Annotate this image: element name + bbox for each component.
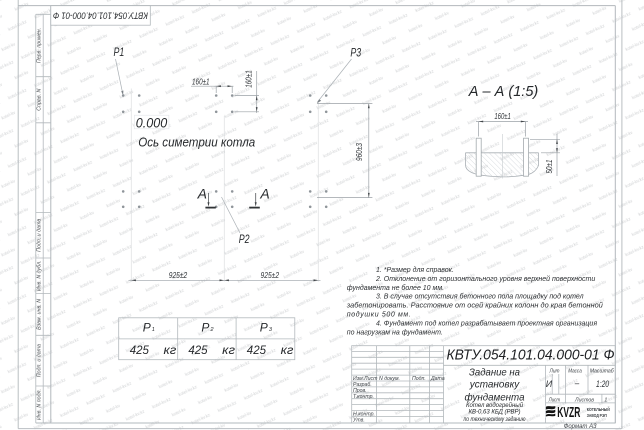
svg-text:Лит: Лит [549, 369, 560, 375]
svg-text:Масштаб: Масштаб [590, 369, 615, 375]
svg-text:Справ. N: Справ. N [37, 88, 43, 110]
svg-text:50±1: 50±1 [545, 160, 554, 174]
svg-text:ЗАВОД РЭП: ЗАВОД РЭП [587, 413, 607, 418]
svg-text:Ось симетрии котла: Ось симетрии котла [138, 135, 255, 149]
svg-text:Листов: Листов [574, 398, 594, 404]
svg-text:160±1: 160±1 [494, 112, 511, 121]
svg-text:Лист: Лист [548, 398, 561, 404]
svg-text:P3: P3 [350, 47, 361, 59]
svg-text:P2: P2 [239, 234, 250, 246]
svg-text:по нагрузкам на фундамент.: по нагрузкам на фундамент. [347, 328, 443, 336]
svg-text:Инв. N подл.: Инв. N подл. [37, 389, 43, 420]
svg-text:Подп. и дата: Подп. и дата [37, 219, 43, 252]
svg-text:установку: установку [469, 378, 520, 390]
svg-text:А: А [259, 186, 269, 202]
svg-text:425: 425 [130, 343, 150, 357]
svg-text:подушки 500 мм.: подушки 500 мм. [347, 311, 411, 319]
svg-text:1. *Размер для справок.: 1. *Размер для справок. [376, 266, 454, 274]
svg-text:1: 1 [604, 398, 607, 404]
svg-text:–: – [574, 379, 580, 388]
svg-text:KVZR: KVZR [557, 405, 580, 421]
svg-text:Утв.: Утв. [353, 417, 365, 423]
svg-text:P: P [143, 321, 151, 335]
svg-text:925±2: 925±2 [261, 271, 280, 280]
svg-text:Взам. инв. N: Взам. инв. N [37, 299, 43, 330]
svg-text:Дата: Дата [430, 376, 445, 382]
svg-text:960±3: 960±3 [355, 142, 364, 161]
svg-text:425: 425 [188, 343, 208, 357]
svg-text:160±1: 160±1 [192, 77, 210, 86]
svg-text:Котел водогрейный: Котел водогрейный [466, 402, 524, 409]
svg-text:2. Отклонение от горизонтально: 2. Отклонение от горизонтального уровня … [375, 275, 595, 283]
svg-text:КВ-0,63 КБД (РВР): КВ-0,63 КБД (РВР) [468, 410, 520, 416]
svg-text:925±2: 925±2 [169, 271, 188, 280]
svg-text:0.000: 0.000 [136, 116, 168, 131]
svg-text:Т.контр.: Т.контр. [353, 394, 374, 400]
svg-text:КВТУ.054.101.04.000-01 Ф: КВТУ.054.101.04.000-01 Ф [447, 347, 615, 364]
svg-text:Перв. примен.: Перв. примен. [37, 28, 43, 63]
svg-text:160±1: 160±1 [245, 70, 254, 88]
svg-text:кг: кг [164, 343, 177, 357]
svg-text:1: 1 [152, 327, 155, 333]
svg-text:по техническому заданию: по техническому заданию [464, 417, 526, 423]
svg-text:Подп.: Подп. [412, 376, 426, 382]
svg-text:фундамента не более 10 мм.: фундамента не более 10 мм. [347, 284, 444, 292]
svg-text:2: 2 [210, 327, 214, 333]
svg-text:P1: P1 [114, 47, 125, 59]
svg-text:А – А (1:5): А – А (1:5) [468, 83, 538, 100]
svg-text:забетонировать. Расстояние от: забетонировать. Расстояние от осей крайн… [346, 302, 603, 310]
svg-text:425: 425 [247, 343, 267, 357]
svg-text:3. В случае отсутствия бетонно: 3. В случае отсутствия бетонного пола пл… [376, 293, 584, 301]
svg-text:Задание на: Задание на [469, 367, 520, 379]
svg-text:P: P [201, 321, 209, 335]
svg-text:Инв. N дубл.: Инв. N дубл. [37, 260, 43, 291]
svg-text:А: А [197, 186, 207, 202]
svg-text:фундамента: фундамента [465, 392, 525, 404]
svg-text:Масса: Масса [568, 369, 582, 375]
svg-text:P: P [260, 321, 268, 335]
svg-text:N докум.: N докум. [379, 376, 400, 382]
svg-text:КВТУ.054.101.04.000-01 Ф: КВТУ.054.101.04.000-01 Ф [53, 10, 148, 20]
svg-text:И: И [546, 379, 553, 389]
svg-text:4. Фундамент под котел разраба: 4. Фундамент под котел разрабатывает про… [376, 319, 597, 327]
svg-text:1:20: 1:20 [596, 379, 609, 389]
svg-text:кг: кг [222, 343, 235, 357]
svg-text:кг: кг [281, 343, 294, 357]
svg-text:КОТЕЛЬНЫЙ: КОТЕЛЬНЫЙ [587, 405, 610, 412]
svg-text:Подп. и дата: Подп. и дата [37, 344, 43, 377]
svg-text:Формат А3: Формат А3 [564, 424, 597, 430]
